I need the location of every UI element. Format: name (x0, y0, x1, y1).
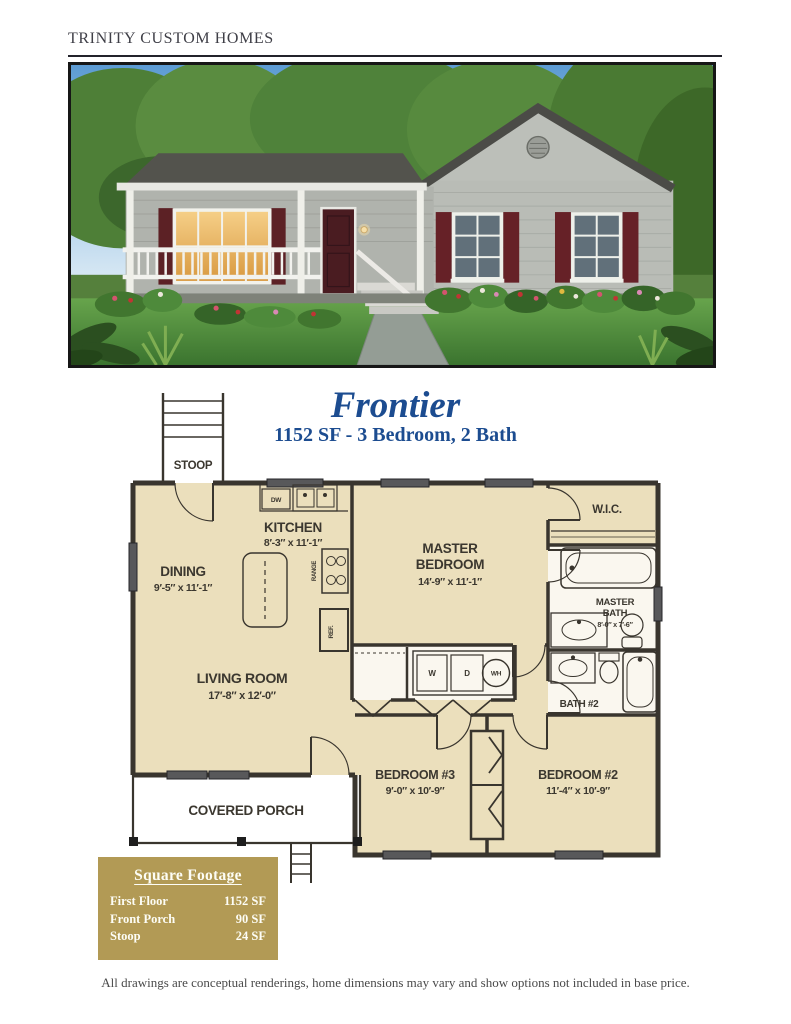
stoop-label: STOOP (174, 460, 213, 472)
master-bedroom-dims: 14′-9″ x 11′-1″ (418, 576, 482, 588)
sqft-label: Front Porch (110, 911, 175, 929)
sqft-row-stoop: Stoop 24 SF (98, 928, 278, 946)
dishwasher-label: DW (271, 497, 282, 504)
living-room-dims: 17′-8″ x 12′-0″ (208, 690, 277, 702)
bedroom3-dims: 9′-0″ x 10′-9″ (386, 785, 445, 797)
disclaimer-text: All drawings are conceptual renderings, … (0, 975, 791, 991)
front-door (321, 208, 355, 294)
covered-porch-label: COVERED PORCH (188, 803, 303, 818)
master-bedroom-label-1: MASTER (422, 541, 478, 556)
master-bath-label-2: BATH (603, 608, 628, 619)
sqft-value: 24 SF (236, 928, 266, 946)
porch-fascia (117, 183, 427, 191)
wic-label: W.I.C. (592, 504, 622, 516)
washer-label: W (428, 669, 436, 678)
water-heater-label: WH (491, 671, 502, 678)
window-lit (158, 208, 285, 284)
master-bath-label-1: MASTER (596, 597, 635, 608)
gable-vent-icon (527, 137, 549, 159)
bedroom2-dims: 11′-4″ x 10′-9″ (546, 785, 610, 797)
refrigerator-label: REF. (328, 625, 335, 638)
dryer-label: D (464, 669, 470, 678)
house-photo (68, 62, 716, 368)
window-right-2 (555, 212, 638, 283)
dining-dims: 9′-5″ x 11′-1″ (154, 582, 212, 594)
master-bath-dims: 8′-0″ x 7′-6″ (597, 620, 633, 629)
dining-label: DINING (160, 564, 205, 579)
window-right-1 (436, 212, 519, 283)
bedroom3-label: BEDROOM #3 (375, 768, 455, 782)
sqft-label: First Floor (110, 893, 168, 911)
sqft-title: Square Footage (98, 867, 278, 885)
square-footage-panel: Square Footage First Floor 1152 SF Front… (98, 857, 278, 960)
sqft-row-first-floor: First Floor 1152 SF (98, 893, 278, 911)
kitchen-dims: 8′-3″ x 11′-1″ (264, 537, 322, 549)
bedroom2-label: BEDROOM #2 (538, 768, 618, 782)
bath2-label: BATH #2 (560, 699, 600, 710)
kitchen-label: KITCHEN (264, 520, 322, 535)
sqft-value: 90 SF (236, 911, 266, 929)
range-label: RANGE (312, 561, 318, 581)
master-bedroom-label-2: BEDROOM (416, 557, 484, 572)
sqft-row-front-porch: Front Porch 90 SF (98, 911, 278, 929)
living-room-label: LIVING ROOM (197, 670, 288, 686)
sqft-label: Stoop (110, 928, 141, 946)
header-divider (68, 55, 722, 57)
sqft-value: 1152 SF (224, 893, 266, 911)
house-illustration (71, 65, 713, 365)
brand-title: TRINITY CUSTOM HOMES (68, 30, 274, 48)
flyer-page: TRINITY CUSTOM HOMES (0, 0, 791, 1024)
floor-plan-drawing: STOOP (115, 385, 675, 890)
porch-light-bulb (361, 227, 367, 233)
